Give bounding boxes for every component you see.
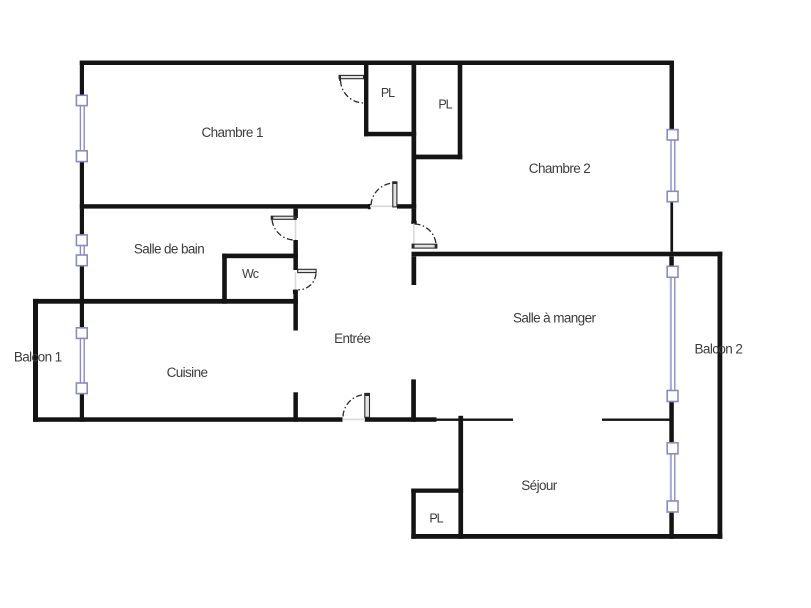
svg-text:Entrée: Entrée — [334, 331, 370, 346]
svg-text:Chambre 2: Chambre 2 — [529, 161, 590, 176]
svg-text:Cuisine: Cuisine — [167, 365, 208, 380]
svg-text:PL: PL — [438, 98, 452, 112]
svg-text:Salle à manger: Salle à manger — [513, 311, 597, 326]
svg-text:Wc: Wc — [242, 267, 259, 281]
svg-text:Chambre 1: Chambre 1 — [202, 125, 263, 140]
svg-text:Balcon 2: Balcon 2 — [695, 342, 743, 357]
svg-text:PL: PL — [429, 512, 443, 526]
svg-text:PL: PL — [381, 86, 395, 100]
svg-text:Séjour: Séjour — [521, 478, 558, 493]
svg-text:Salle de bain: Salle de bain — [134, 242, 204, 257]
svg-text:Balcon 1: Balcon 1 — [14, 350, 62, 365]
